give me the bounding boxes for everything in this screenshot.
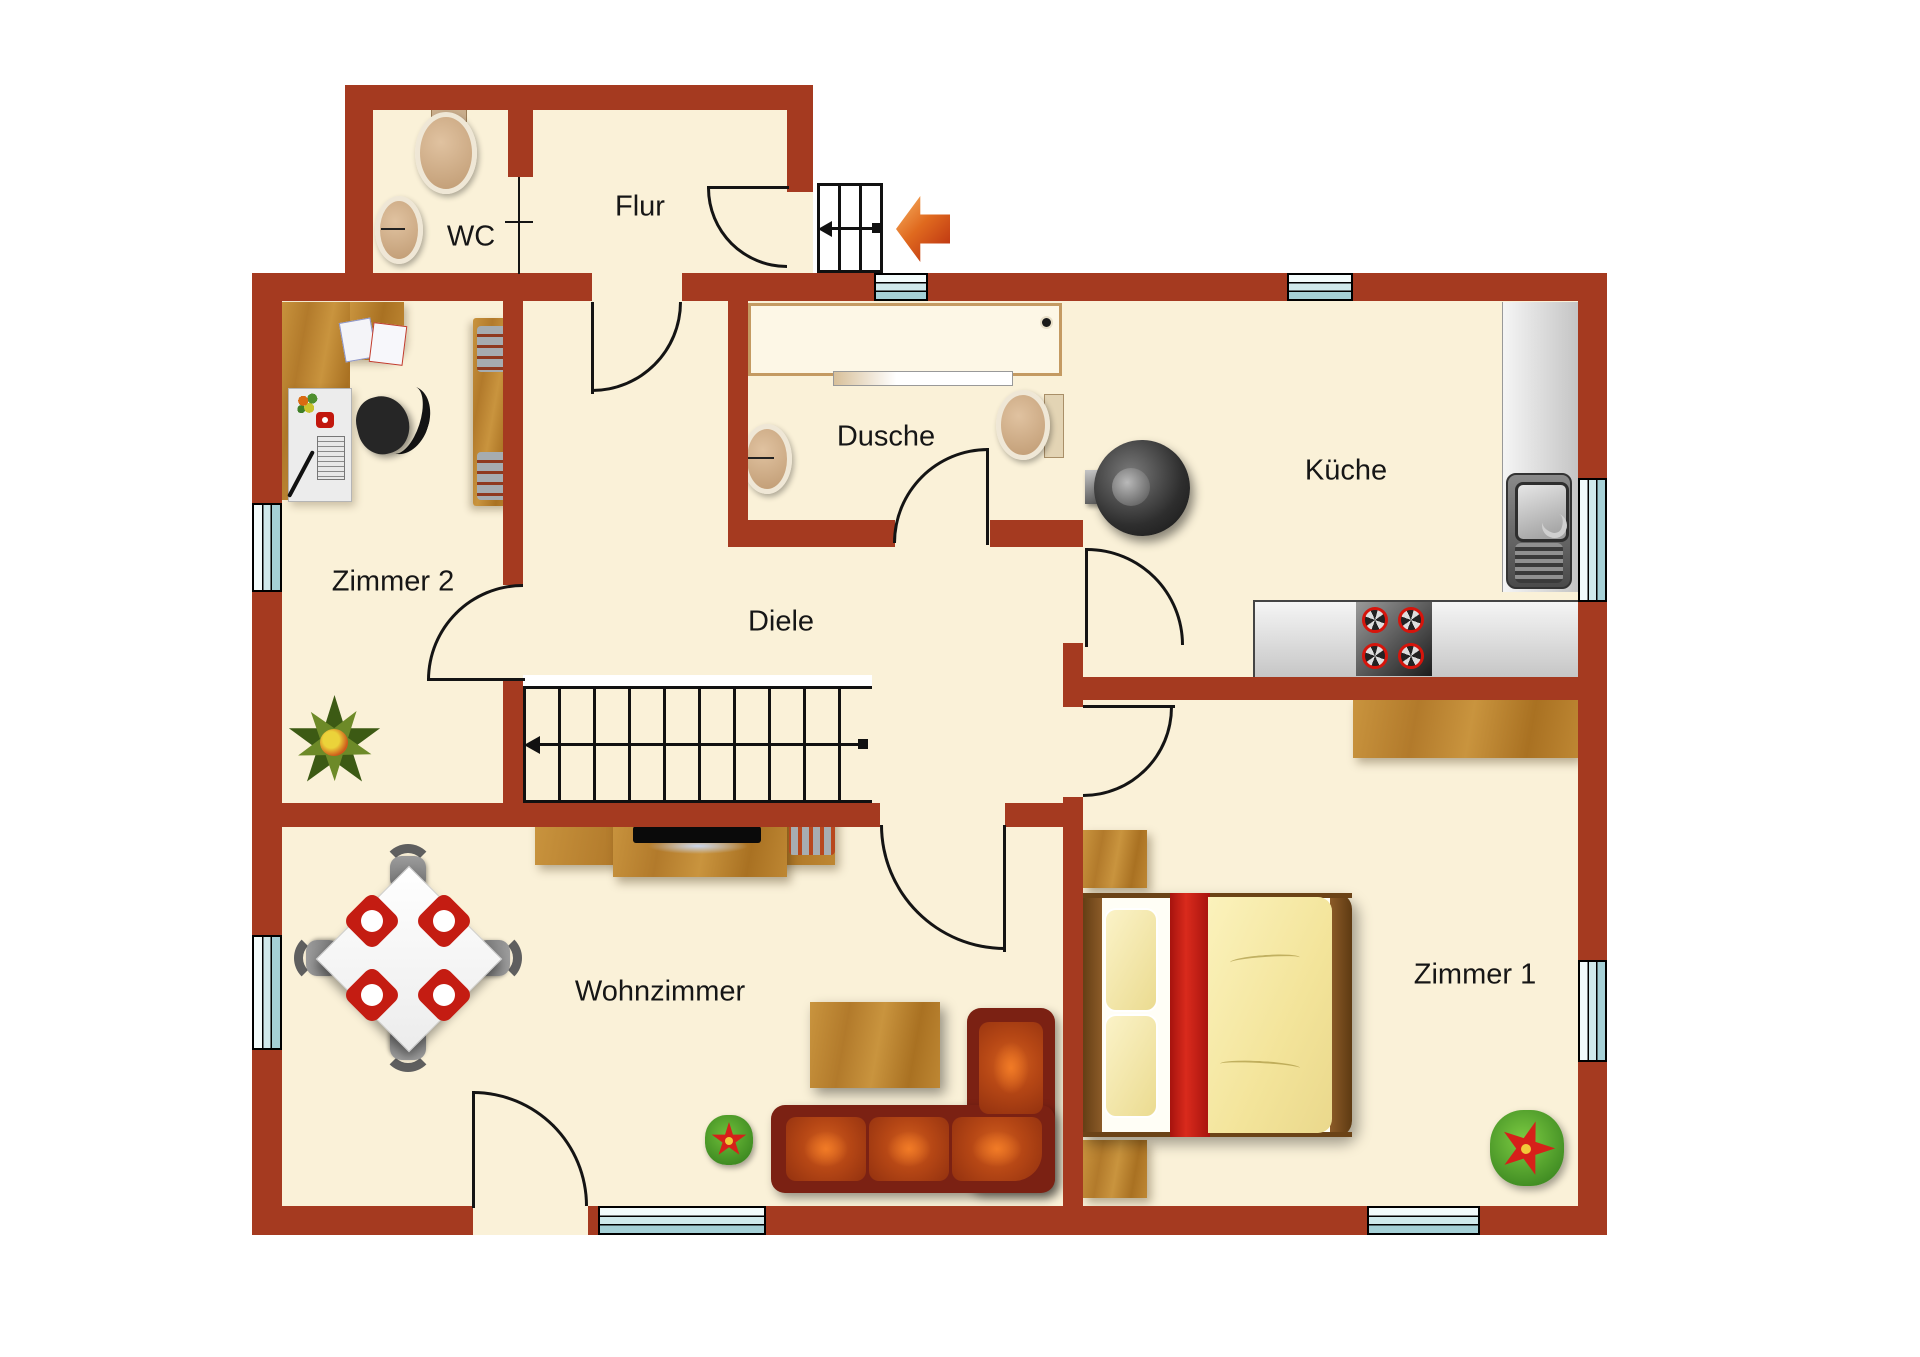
entrance-stairs <box>817 183 883 273</box>
window-bottom-zimmer1 <box>1367 1206 1480 1235</box>
room-label-wohnzimmer: Wohnzimmer <box>575 976 745 1009</box>
wall-annex-top <box>345 85 813 110</box>
entrance-arrow-nub <box>872 223 882 233</box>
wardrobe <box>1353 700 1578 758</box>
wall-zimmer2-diele-upper <box>503 300 523 585</box>
desk-flower-icon <box>296 392 320 414</box>
doorway-terrace <box>473 1206 588 1235</box>
stair-arrow-line <box>536 743 862 746</box>
wc-toilet <box>415 112 477 194</box>
wc-sink <box>375 196 423 264</box>
wall-wohnzimmer-zimmer1 <box>1063 797 1083 1206</box>
sofa-cushion <box>786 1117 866 1181</box>
window-left-wohnzimmer <box>252 935 282 1050</box>
burner <box>1362 607 1388 633</box>
bed-rail-right <box>1330 893 1352 1137</box>
plant <box>1487 1106 1567 1190</box>
window-right-kueche <box>1578 478 1607 602</box>
shower-sink <box>742 424 792 494</box>
bed <box>1080 893 1352 1137</box>
pillow <box>1104 1014 1158 1118</box>
staircase <box>523 686 872 803</box>
sink-drainer <box>1515 543 1563 583</box>
window-top-entrance <box>874 273 928 301</box>
room-label-zimmer2: Zimmer 2 <box>332 566 454 599</box>
wall-dusche-left <box>728 300 748 547</box>
wall-top <box>252 273 1607 301</box>
kitchen-sink-unit <box>1506 473 1572 589</box>
entrance-arrow-head <box>818 221 832 237</box>
stair-arrow-nub <box>858 739 868 749</box>
doorway-flur-diele <box>592 273 682 301</box>
plant <box>287 695 382 790</box>
window-bottom-wohnzimmer <box>598 1206 766 1235</box>
keyboard <box>317 436 345 480</box>
wall-right <box>1578 273 1607 1235</box>
toilet <box>996 390 1050 460</box>
burner <box>1398 607 1424 633</box>
burner <box>1362 643 1388 669</box>
floor-plan: WC Flur Dusche Küche Zimmer 2 Diele Wohn… <box>0 0 1920 1357</box>
nightstand <box>1083 830 1147 888</box>
window-right-zimmer1 <box>1578 960 1607 1062</box>
sofa-cushion <box>869 1117 949 1181</box>
wall-zimmer2-diele-lower <box>503 680 523 806</box>
desk-red-box-dot <box>322 417 328 423</box>
blanket <box>1208 897 1332 1133</box>
staircase-top-gap <box>523 675 872 686</box>
stair-arrow-head <box>524 736 540 754</box>
shower-sink-faucet <box>748 457 774 459</box>
wall-dusche-bottom-b <box>990 520 1083 547</box>
sofa-cushion <box>979 1022 1043 1114</box>
tv <box>633 826 761 843</box>
room-label-zimmer1: Zimmer 1 <box>1414 959 1536 992</box>
burner <box>1398 643 1424 669</box>
door-leaf-wc <box>518 177 520 274</box>
doorway-entrance <box>787 192 813 273</box>
room-label-dusche: Dusche <box>837 421 935 454</box>
wall-left <box>252 273 282 1235</box>
shower-screen <box>833 371 1013 386</box>
room-label-flur: Flur <box>615 191 665 224</box>
room-label-kueche: Küche <box>1305 455 1387 488</box>
wall-dusche-bottom-a <box>728 520 895 547</box>
pillow <box>1104 908 1158 1012</box>
wall-annex-left <box>345 85 373 275</box>
entrance-direction-arrow-icon <box>896 196 950 262</box>
wall-wc-divider <box>508 110 533 177</box>
heater-pipe-end <box>1112 468 1150 506</box>
shower-drain <box>1042 318 1051 327</box>
bed-runner <box>1170 893 1210 1137</box>
nightstand <box>1083 1140 1147 1198</box>
wall-annex-right <box>787 85 813 192</box>
wc-sink-faucet <box>381 228 405 230</box>
door-tick-wc <box>505 221 533 223</box>
window-left-zimmer2 <box>252 503 282 592</box>
stove <box>1356 602 1432 676</box>
shower-stall <box>748 303 1062 376</box>
sofa-cushion-corner <box>952 1117 1042 1181</box>
desk-paper <box>369 322 408 366</box>
bed-rail-left <box>1080 893 1102 1137</box>
room-label-diele: Diele <box>748 606 814 639</box>
room-label-wc: WC <box>447 221 495 254</box>
wall-diele-kueche-stub <box>1063 643 1083 707</box>
wall-mid-horizontal-a <box>282 803 880 827</box>
plant <box>703 1113 755 1169</box>
wall-kueche-zimmer1 <box>1083 677 1578 700</box>
coffee-table <box>810 1002 940 1088</box>
window-top-kueche <box>1287 273 1353 301</box>
